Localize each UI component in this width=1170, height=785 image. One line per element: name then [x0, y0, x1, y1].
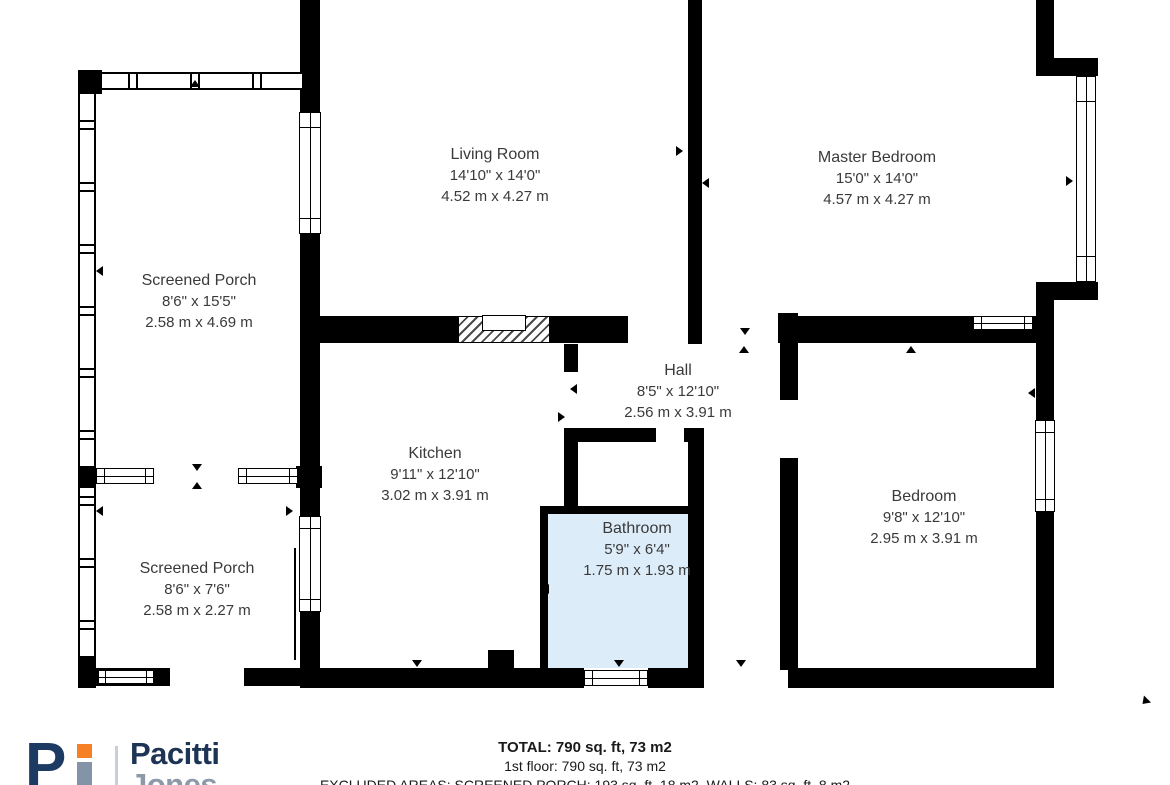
room-name: Master Bedroom — [767, 147, 987, 168]
wall — [488, 650, 514, 668]
room-name: Screened Porch — [89, 270, 309, 291]
arrow-marker-icon — [542, 584, 549, 594]
wall — [300, 668, 544, 688]
arrow-marker-icon — [96, 506, 103, 516]
room-label-hall: Hall 8'5" x 12'10" 2.56 m x 3.91 m — [568, 360, 788, 423]
arrow-marker-icon — [1028, 388, 1035, 398]
room-dim-imperial: 8'6" x 15'5" — [89, 291, 309, 312]
room-dim-imperial: 15'0" x 14'0" — [767, 168, 987, 189]
floor-area-line: 1st floor: 790 sq. ft, 73 m2 — [0, 757, 1170, 776]
window — [98, 670, 154, 684]
wall — [788, 668, 1054, 688]
wall — [244, 668, 302, 686]
room-label-bathroom: Bathroom 5'9" x 6'4" 1.75 m x 1.93 m — [527, 518, 747, 581]
floorplan-canvas: Screened Porch 8'6" x 15'5" 2.58 m x 4.6… — [0, 0, 1170, 710]
wall — [1036, 300, 1054, 420]
arrow-marker-icon — [286, 506, 293, 516]
arrow-marker-icon — [676, 146, 683, 156]
arrow-marker-icon — [740, 328, 750, 335]
room-name: Kitchen — [325, 443, 545, 464]
room-dim-metric: 4.52 m x 4.27 m — [385, 186, 605, 207]
room-name: Screened Porch — [87, 558, 307, 579]
room-dim-imperial: 9'11" x 12'10" — [325, 464, 545, 485]
room-name: Living Room — [385, 144, 605, 165]
window — [96, 468, 154, 484]
window — [1035, 420, 1055, 512]
wall — [564, 428, 656, 442]
arrow-marker-icon — [906, 346, 916, 353]
arrow-marker-icon — [702, 178, 709, 188]
wall — [1036, 58, 1098, 76]
wall — [544, 668, 584, 688]
room-label-master-bedroom: Master Bedroom 15'0" x 14'0" 4.57 m x 4.… — [767, 147, 987, 210]
room-dim-imperial: 8'5" x 12'10" — [568, 381, 788, 402]
arrow-marker-icon — [192, 482, 202, 489]
window — [584, 670, 648, 686]
arrow-marker-icon — [616, 506, 626, 513]
window — [299, 112, 321, 234]
room-label-screened-porch-top: Screened Porch 8'6" x 15'5" 2.58 m x 4.6… — [89, 270, 309, 333]
room-dim-imperial: 9'8" x 12'10" — [814, 507, 1034, 528]
room-label-kitchen: Kitchen 9'11" x 12'10" 3.02 m x 3.91 m — [325, 443, 545, 506]
room-dim-metric: 2.95 m x 3.91 m — [814, 528, 1034, 549]
room-name: Bedroom — [814, 486, 1034, 507]
porch-post — [78, 466, 96, 488]
window — [973, 316, 1033, 330]
room-label-living-room: Living Room 14'10" x 14'0" 4.52 m x 4.27… — [385, 144, 605, 207]
room-dim-metric: 1.75 m x 1.93 m — [527, 560, 747, 581]
room-dim-metric: 3.02 m x 3.91 m — [325, 485, 545, 506]
window — [238, 468, 298, 484]
wall — [300, 0, 320, 112]
arrow-marker-icon — [558, 412, 565, 422]
arrow-marker-icon — [1066, 176, 1073, 186]
arrow-marker-icon — [192, 464, 202, 471]
arrow-marker-icon — [739, 346, 749, 353]
room-name: Hall — [568, 360, 788, 381]
arrow-marker-icon — [1139, 695, 1151, 707]
wall — [648, 668, 704, 688]
floorplan-page: Screened Porch 8'6" x 15'5" 2.58 m x 4.6… — [0, 0, 1170, 785]
arrow-marker-icon — [614, 660, 624, 667]
room-label-screened-porch-bottom: Screened Porch 8'6" x 7'6" 2.58 m x 2.27… — [87, 558, 307, 621]
excluded-areas-line: EXCLUDED AREAS: SCREENED PORCH: 193 sq. … — [0, 776, 1170, 785]
room-dim-imperial: 5'9" x 6'4" — [527, 539, 747, 560]
room-dim-imperial: 14'10" x 14'0" — [385, 165, 605, 186]
room-label-bedroom: Bedroom 9'8" x 12'10" 2.95 m x 3.91 m — [814, 486, 1034, 549]
wall — [300, 344, 320, 518]
area-summary: TOTAL: 790 sq. ft, 73 m2 1st floor: 790 … — [0, 738, 1170, 785]
wall — [780, 458, 798, 670]
wall — [688, 0, 702, 344]
room-dim-metric: 4.57 m x 4.27 m — [767, 189, 987, 210]
room-dim-metric: 2.56 m x 3.91 m — [568, 402, 788, 423]
footer: P Pacitti Jones TOTAL: 790 sq. ft, 73 m2… — [0, 710, 1170, 785]
porch-post — [296, 466, 322, 488]
screen-wall — [102, 72, 302, 90]
wall — [1036, 282, 1098, 300]
arrow-marker-icon — [412, 660, 422, 667]
wall — [1036, 512, 1054, 688]
wall — [973, 330, 1033, 343]
wall — [788, 316, 973, 343]
wall — [1036, 0, 1054, 58]
total-area-line: TOTAL: 790 sq. ft, 73 m2 — [0, 738, 1170, 757]
arrow-marker-icon — [190, 80, 200, 87]
room-dim-imperial: 8'6" x 7'6" — [87, 579, 307, 600]
arrow-marker-icon — [736, 660, 746, 667]
room-dim-metric: 2.58 m x 4.69 m — [89, 312, 309, 333]
porch-post — [78, 70, 102, 94]
fireplace-inset — [482, 315, 526, 331]
room-name: Bathroom — [527, 518, 747, 539]
window — [1076, 76, 1096, 282]
room-dim-metric: 2.58 m x 2.27 m — [87, 600, 307, 621]
